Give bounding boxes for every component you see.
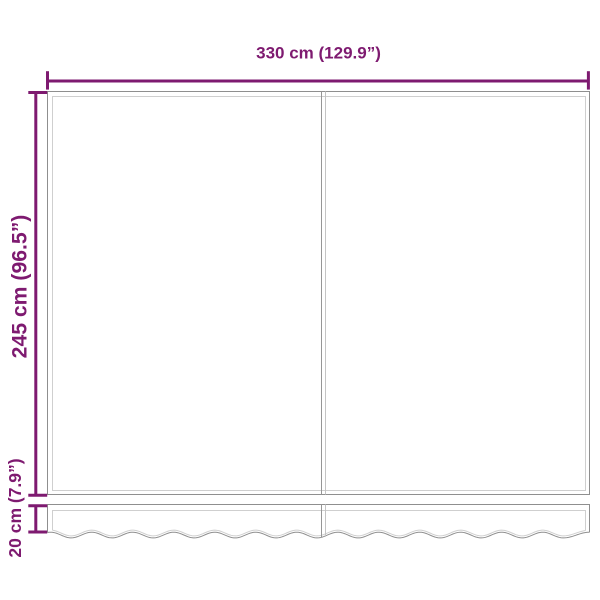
- svg-text:20 cm (7.9”): 20 cm (7.9”): [5, 458, 25, 557]
- svg-text:245 cm (96.5”): 245 cm (96.5”): [9, 215, 32, 359]
- svg-text:330 cm (129.9”): 330 cm (129.9”): [256, 44, 381, 63]
